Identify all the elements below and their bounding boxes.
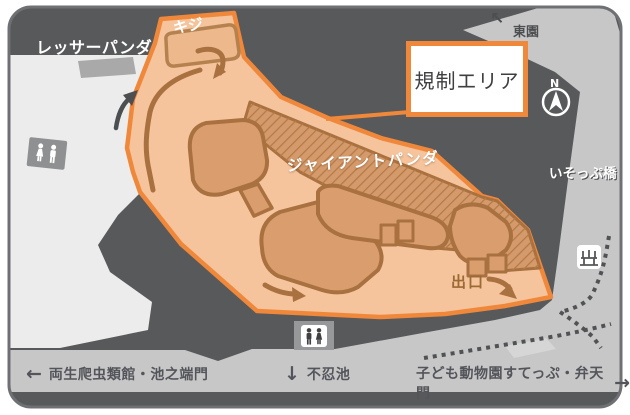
left-arrow-icon: ←: [26, 363, 42, 385]
shinobazu-pond-label: 不忍池: [307, 364, 351, 384]
bridge-icon: [577, 245, 601, 269]
restricted-area-callout-label: 規制エリア: [415, 65, 520, 94]
reptile-house-gate-label: 両生爬虫類館・池之端門: [49, 364, 209, 384]
map-canvas: [0, 0, 630, 415]
restroom-icon-south: [294, 321, 334, 350]
restricted-area-callout: 規制エリア: [406, 41, 528, 117]
reptile-house-gate-sign: ← 両生爬虫類館・池之端門: [26, 363, 208, 385]
zoo-map: レッサーパンダ キジ ジャイアントパンダ 規制エリア ↖ 東園 N いそっぷ橋 …: [0, 0, 630, 415]
childrens-zoo-gate-label: 子ども動物園すてっぷ・弁天門: [416, 363, 607, 403]
pheasant-pen: [166, 25, 239, 66]
restroom-icon-west: [27, 137, 68, 170]
right-arrow-icon: →: [614, 372, 630, 394]
down-arrow-icon: ↓: [284, 363, 300, 385]
childrens-zoo-gate-sign: 子ども動物園すてっぷ・弁天門 →: [416, 363, 630, 403]
shinobazu-pond-sign: ↓ 不忍池: [284, 363, 350, 385]
